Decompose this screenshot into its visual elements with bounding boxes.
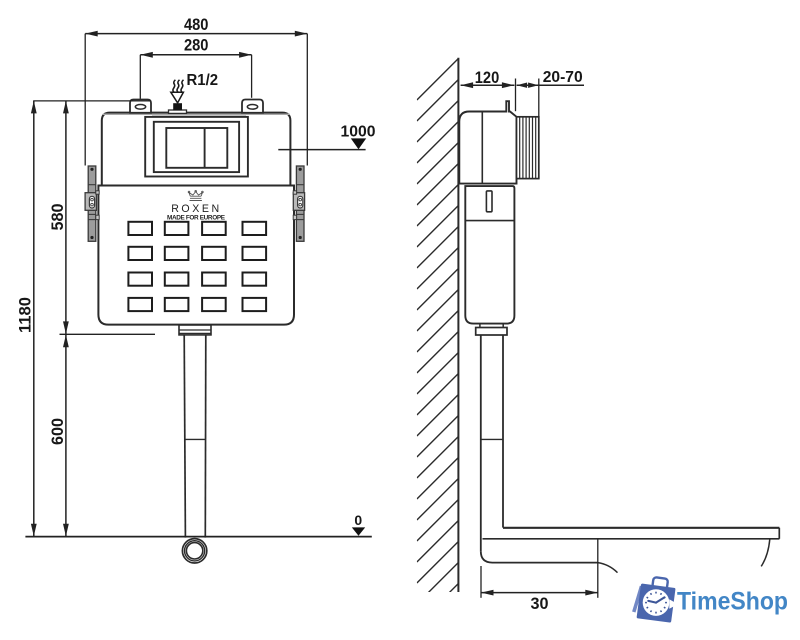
svg-text:480: 480 xyxy=(184,15,209,34)
svg-text:600: 600 xyxy=(48,418,67,445)
svg-text:R1/2: R1/2 xyxy=(187,72,219,89)
svg-text:580: 580 xyxy=(48,204,67,231)
svg-text:0: 0 xyxy=(354,512,362,528)
svg-text:MADE FOR EUROPE: MADE FOR EUROPE xyxy=(167,214,226,221)
svg-text:ROXEN: ROXEN xyxy=(171,203,219,215)
svg-text:20-70: 20-70 xyxy=(543,69,583,86)
svg-text:30: 30 xyxy=(531,595,549,613)
svg-text:1000: 1000 xyxy=(341,123,376,140)
svg-text:120: 120 xyxy=(475,68,500,87)
svg-text:TimeShop: TimeShop xyxy=(677,588,788,616)
svg-text:280: 280 xyxy=(184,36,209,55)
svg-text:1180: 1180 xyxy=(16,297,35,333)
